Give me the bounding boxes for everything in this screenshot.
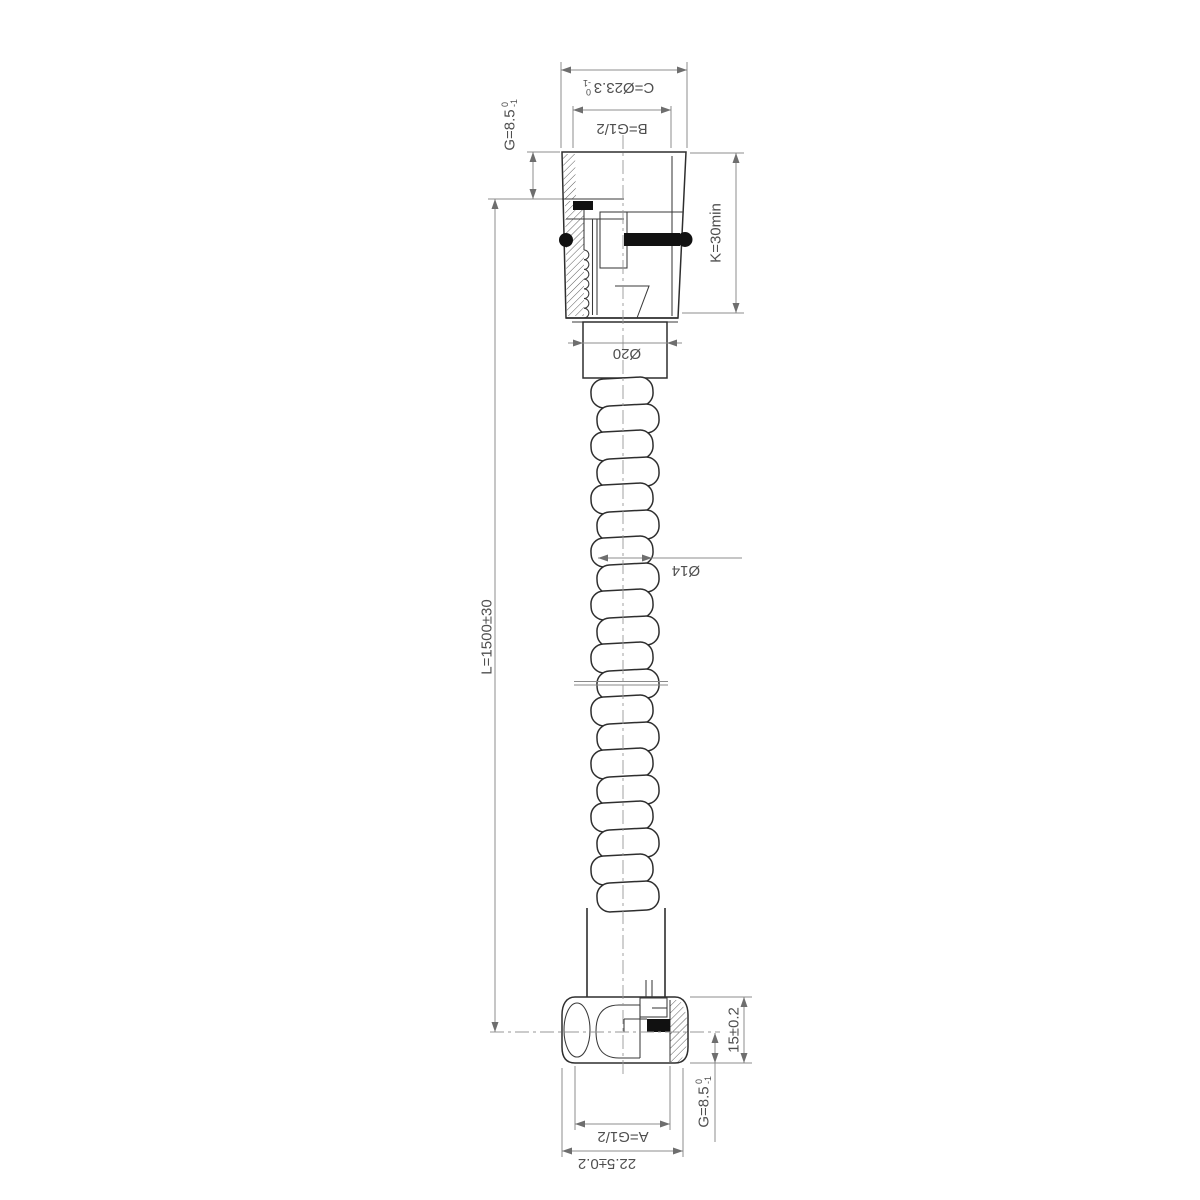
dim-c-label: C=Ø23.3	[594, 79, 654, 96]
dim-b-label: B=G1/2	[596, 120, 647, 137]
upper-seal-rect	[573, 201, 593, 210]
dim-k-label: K=30min	[707, 203, 724, 263]
dim-a-label: A=G1/2	[597, 1128, 648, 1145]
drawing-canvas: C=Ø23.3 0 -1 B=G1/2 G=8.5 0 -1	[0, 0, 1200, 1200]
dim-d14-label: Ø14	[672, 562, 700, 579]
o-ring-band	[624, 233, 680, 246]
dim-15-label: 15±0.2	[725, 1007, 742, 1053]
dim-d20-label: Ø20	[613, 345, 641, 362]
o-ring-section-left	[559, 233, 573, 247]
dim-g-bottom-label: G=8.5	[695, 1086, 712, 1127]
dim-c-tol-lower: -1	[583, 78, 591, 88]
section-hatch-upper-strip	[563, 154, 576, 199]
dim-l-label: L=1500±30	[478, 599, 495, 674]
o-ring-section-right	[678, 232, 693, 247]
dim-g-top-tol-lower: -1	[509, 99, 519, 107]
lower-seal-rect	[647, 1019, 670, 1032]
upper-connector	[559, 152, 693, 322]
dim-g-top-label: G=8.5	[501, 109, 518, 150]
dim-225-label: 22.5±0.2	[578, 1155, 636, 1172]
technical-drawing: C=Ø23.3 0 -1 B=G1/2 G=8.5 0 -1	[0, 0, 1200, 1200]
dim-g-bottom-tol-lower: -1	[703, 1076, 713, 1084]
section-hatch-left-wall	[565, 201, 584, 316]
